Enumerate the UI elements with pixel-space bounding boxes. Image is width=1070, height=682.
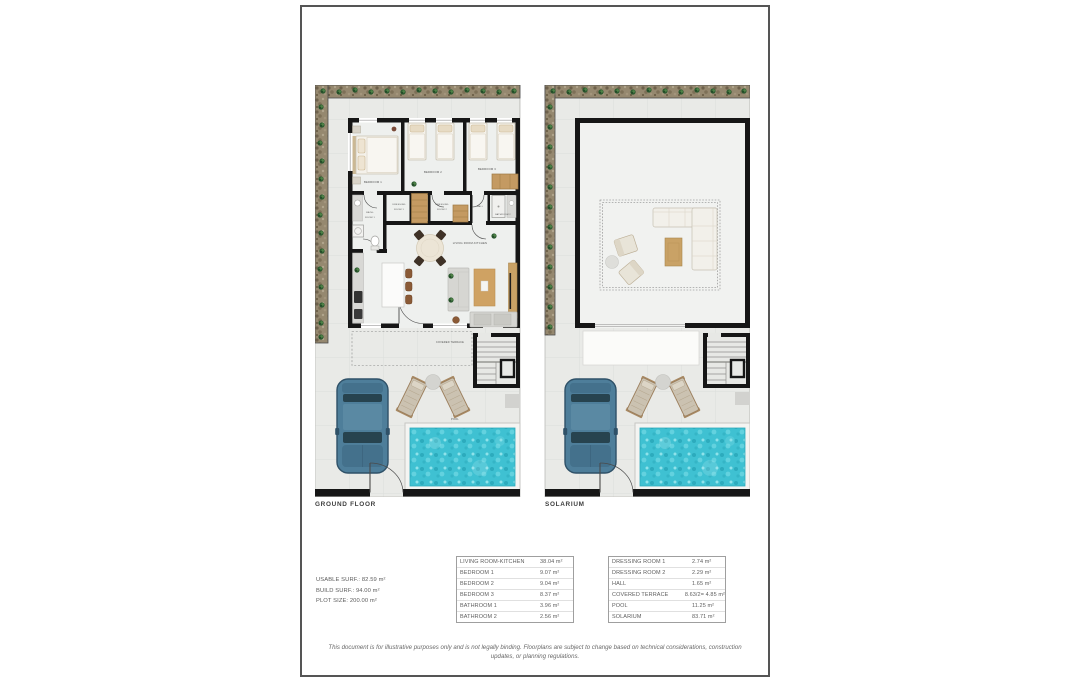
car	[335, 379, 390, 473]
table-row: COVERED TERRACE8.63/2= 4.85 m²	[609, 589, 725, 600]
room-name: BEDROOM 2	[457, 581, 540, 587]
table-row: SOLARIUM83.71 m²	[609, 611, 725, 622]
bathroom2-label: BATHROOM 2	[495, 213, 511, 216]
room-name: LIVING ROOM-KITCHEN	[457, 559, 540, 565]
dressing2-label-line1: DRESSING	[435, 204, 448, 206]
staircase	[705, 333, 748, 386]
terrace-roof-strip	[583, 331, 699, 365]
hall-label: HALL	[477, 205, 484, 208]
room-area: 38.04 m²	[540, 559, 573, 565]
dressing2-label-line2: ROOM 2	[437, 209, 447, 211]
table-row: LIVING ROOM-KITCHEN38.04 m²	[457, 557, 573, 567]
table-row: BEDROOM 29.04 m²	[457, 578, 573, 589]
table-row: POOL11.25 m²	[609, 600, 725, 611]
room-name: POOL	[609, 603, 692, 609]
bedroom3-label: BEDROOM 3	[478, 167, 496, 171]
room-name: BATHROOM 1	[457, 603, 540, 609]
room-name: DRESSING ROOM 2	[609, 570, 692, 576]
surface-summary: USABLE SURF.: 82.59 m² BUILD SURF.: 94.0…	[316, 575, 451, 607]
pool	[405, 423, 520, 491]
solarium-floor-label: SOLARIUM	[545, 501, 585, 508]
room-area: 2.56 m²	[540, 614, 573, 620]
legal-disclaimer: This document is for illustrative purpos…	[322, 643, 748, 661]
bedroom1-label: BEDROOM 1	[364, 180, 382, 184]
table-row: BEDROOM 19.07 m²	[457, 567, 573, 578]
room-name: HALL	[609, 581, 692, 587]
floorplan-document-page: BEDROOM 1 BEDROOM 2 BEDROOM 3 DRESSING R…	[300, 5, 770, 677]
ground-floor-label: GROUND FLOOR	[315, 501, 376, 508]
room-area: 83.71 m²	[692, 614, 725, 620]
room-area: 2.29 m²	[692, 570, 725, 576]
area-table-1: LIVING ROOM-KITCHEN38.04 m² BEDROOM 19.0…	[456, 556, 574, 623]
table-row: HALL1.65 m²	[609, 578, 725, 589]
room-area: 9.07 m²	[540, 570, 573, 576]
pool	[635, 423, 750, 491]
gravel-border-left	[545, 85, 555, 335]
room-name: BEDROOM 3	[457, 592, 540, 598]
table-row: DRESSING ROOM 22.29 m²	[609, 567, 725, 578]
dressing1-label-line1: DRESSING	[392, 204, 405, 206]
table-row: DRESSING ROOM 12.74 m²	[609, 557, 725, 567]
room-name: DRESSING ROOM 1	[609, 559, 692, 565]
table-row: BATHROOM 22.56 m²	[457, 611, 573, 622]
room-area: 1.65 m²	[692, 581, 725, 587]
area-table-2: DRESSING ROOM 12.74 m² DRESSING ROOM 22.…	[608, 556, 726, 623]
bathroom1-label-line1: BATH-	[366, 211, 373, 214]
bedroom2-label: BEDROOM 2	[424, 170, 442, 174]
utility-pad	[505, 394, 520, 408]
bathroom1-label-line2: ROOM 1	[365, 217, 375, 219]
car	[563, 379, 618, 473]
ground-floor-plan: BEDROOM 1 BEDROOM 2 BEDROOM 3 DRESSING R…	[315, 85, 520, 497]
plot-size: PLOT SIZE: 200.00 m²	[316, 596, 451, 607]
room-area: 11.25 m²	[692, 603, 725, 609]
room-area: 8.63/2= 4.85 m²	[685, 592, 725, 598]
covered-terrace-label: COVERED TERRACE	[436, 341, 464, 344]
room-name: COVERED TERRACE	[609, 592, 685, 598]
room-area: 3.96 m²	[540, 603, 573, 609]
usable-surface: USABLE SURF.: 82.59 m²	[316, 575, 451, 586]
table-row: BATHROOM 13.96 m²	[457, 600, 573, 611]
pool-label: POOL	[451, 418, 459, 421]
floorplans-drawing: BEDROOM 1 BEDROOM 2 BEDROOM 3 DRESSING R…	[315, 85, 750, 497]
room-name: BATHROOM 2	[457, 614, 540, 620]
boundary-wall	[545, 489, 750, 497]
glass-door-opening	[595, 323, 685, 328]
table-row: BEDROOM 38.37 m²	[457, 589, 573, 600]
living-room-label: LIVING ROOM-KITCHEN	[453, 241, 487, 245]
room-name: BEDROOM 1	[457, 570, 540, 576]
room-area: 2.74 m²	[692, 559, 725, 565]
room-area: 9.04 m²	[540, 581, 573, 587]
boundary-wall	[315, 489, 520, 497]
utility-pad	[735, 392, 750, 405]
dressing1-label-line2: ROOM 1	[394, 209, 404, 211]
solarium-plan	[545, 85, 750, 497]
room-area: 8.37 m²	[540, 592, 573, 598]
room-name: SOLARIUM	[609, 614, 692, 620]
build-surface: BUILD SURF.: 94.00 m²	[316, 586, 451, 597]
staircase	[475, 333, 518, 386]
